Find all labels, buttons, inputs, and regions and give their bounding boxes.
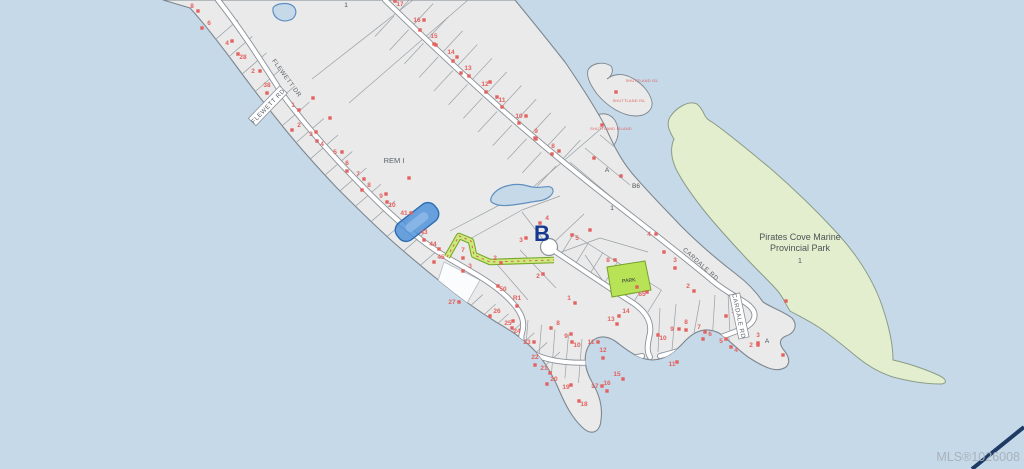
lot-number: 9 bbox=[670, 326, 674, 333]
lot-number: 3 bbox=[519, 237, 523, 244]
lot-number: 4 bbox=[734, 347, 738, 354]
lot-number: 17 bbox=[591, 383, 599, 390]
lot-number: 16 bbox=[603, 380, 611, 387]
lot-dot bbox=[729, 345, 732, 348]
lot-number: 44 bbox=[429, 241, 437, 248]
lot-dot bbox=[451, 59, 454, 62]
lot-dot bbox=[314, 130, 317, 133]
lot-number: 3 bbox=[756, 332, 760, 339]
lot-dot bbox=[724, 337, 727, 340]
lot-number: 17 bbox=[396, 1, 404, 8]
lot-number: 18 bbox=[580, 401, 588, 408]
area-label: Provincial Park bbox=[770, 243, 831, 253]
lot-number: 24 bbox=[513, 328, 521, 335]
lot-number: 4 bbox=[225, 40, 229, 47]
island-label: SHUTTLAND ISL bbox=[613, 98, 647, 103]
lot-dot bbox=[549, 326, 552, 329]
lot-dot bbox=[548, 371, 551, 374]
lot-number: 50 bbox=[499, 286, 507, 293]
lot-number: 38 bbox=[263, 82, 271, 89]
lot-number: 7 bbox=[461, 247, 465, 254]
lot-dot bbox=[409, 211, 412, 214]
lot-number: 8 bbox=[606, 257, 610, 264]
lot-number: 3 bbox=[673, 257, 677, 264]
lot-dot bbox=[457, 300, 460, 303]
lot-number: 5 bbox=[333, 149, 337, 156]
lot-dot bbox=[570, 233, 573, 236]
lot-dot bbox=[569, 383, 572, 386]
lot-number: 5 bbox=[719, 338, 723, 345]
lot-number: 10 bbox=[388, 202, 396, 209]
lot-number: 19 bbox=[562, 384, 570, 391]
lot-dot bbox=[662, 250, 665, 253]
lot-number: B6 bbox=[632, 183, 640, 190]
lot-dot bbox=[200, 26, 203, 29]
lot-dot bbox=[290, 128, 293, 131]
lot-number: 2 bbox=[749, 342, 753, 349]
lot-number: 8 bbox=[367, 182, 371, 189]
lot-dot bbox=[675, 360, 678, 363]
lot-dot bbox=[422, 238, 425, 241]
lot-number: 11 bbox=[499, 97, 506, 104]
lot-number: 28 bbox=[239, 54, 247, 61]
lot-number: 4 bbox=[647, 231, 651, 238]
lot-dot bbox=[455, 55, 458, 58]
lot-dot bbox=[613, 258, 616, 261]
lot-number: 3 bbox=[309, 131, 313, 138]
lot-number: 9 bbox=[379, 193, 383, 200]
lot-dot bbox=[550, 152, 553, 155]
island-label: SHUTTLAND ISL bbox=[626, 78, 660, 83]
lot-dot bbox=[635, 285, 638, 288]
lot-dot bbox=[654, 232, 657, 235]
lot-dot bbox=[265, 91, 268, 94]
lot-dot bbox=[532, 340, 535, 343]
lot-number: 7 bbox=[697, 324, 701, 331]
lot-dot bbox=[541, 272, 544, 275]
lot-dot bbox=[596, 340, 599, 343]
section-b-label: B bbox=[534, 221, 550, 246]
lot-number: 1 bbox=[567, 295, 571, 302]
lot-dot bbox=[656, 333, 659, 336]
lot-dot bbox=[510, 326, 513, 329]
lot-dot bbox=[461, 269, 464, 272]
lot-number: 1 bbox=[291, 102, 295, 109]
lot-dot bbox=[362, 177, 365, 180]
lot-dot bbox=[385, 200, 388, 203]
lot-dot bbox=[459, 71, 462, 74]
lot-dot bbox=[432, 260, 435, 263]
lot-number: 6 bbox=[207, 20, 211, 27]
lot-dot bbox=[500, 105, 503, 108]
lot-number: 14 bbox=[447, 49, 455, 56]
lot-number: 2 bbox=[493, 255, 497, 262]
mls-watermark: MLS®1026008 bbox=[936, 450, 1020, 464]
lot-dot bbox=[684, 328, 687, 331]
lot-number: 6 bbox=[708, 331, 712, 338]
lot-dot bbox=[617, 314, 620, 317]
lot-number: 3 bbox=[468, 263, 472, 270]
lot-number: 8 bbox=[684, 319, 688, 326]
lot-dot bbox=[588, 228, 591, 231]
lot-number: 7 bbox=[356, 171, 360, 178]
lot-number: 4 bbox=[320, 141, 324, 148]
lot-dot bbox=[484, 90, 487, 93]
lot-dot bbox=[573, 301, 576, 304]
lot-dot bbox=[601, 356, 604, 359]
lot-dot bbox=[619, 174, 622, 177]
lot-dot bbox=[533, 363, 536, 366]
lot-dot bbox=[297, 108, 300, 111]
lot-number: 22 bbox=[531, 354, 539, 361]
lot-dot bbox=[236, 52, 239, 55]
lot-number: R1 bbox=[513, 295, 522, 302]
lot-number: 15 bbox=[613, 371, 621, 378]
lot-number: 11 bbox=[669, 361, 676, 368]
lot-number: 26 bbox=[493, 308, 501, 315]
area-label: REM I bbox=[384, 156, 405, 165]
lot-dot bbox=[621, 377, 624, 380]
lot-dot bbox=[393, 0, 396, 3]
area-label: Pirates Cove Marine bbox=[759, 232, 841, 242]
map-viewport[interactable]: 8642823812345678910414344451171615141312… bbox=[0, 0, 1024, 469]
lot-number: 8 bbox=[551, 143, 555, 150]
lot-dot bbox=[577, 399, 580, 402]
lot-dot bbox=[499, 261, 502, 264]
lot-dot bbox=[524, 236, 527, 239]
lot-number: 9 bbox=[534, 128, 538, 135]
lot-number: 2 bbox=[536, 273, 540, 280]
lot-number: 21 bbox=[540, 365, 548, 372]
lot-number: 13 bbox=[464, 65, 472, 72]
lot-number: 11 bbox=[588, 339, 595, 346]
lot-number: 10 bbox=[659, 335, 667, 342]
area-label: 1 bbox=[798, 258, 802, 265]
lot-dot bbox=[311, 96, 314, 99]
lot-number: 5 bbox=[575, 235, 579, 242]
lot-dot bbox=[781, 353, 784, 356]
lot-number: 41 bbox=[400, 210, 408, 217]
lot-number: 8 bbox=[190, 3, 194, 10]
lot-dot bbox=[570, 340, 573, 343]
lot-dot bbox=[495, 95, 498, 98]
lot-number: 23 bbox=[523, 339, 531, 346]
lot-dot bbox=[360, 188, 363, 191]
lot-number: 1 bbox=[610, 205, 614, 212]
lot-dot bbox=[515, 304, 518, 307]
lot-dot bbox=[517, 121, 520, 124]
lot-dot bbox=[557, 149, 560, 152]
lot-number: 15 bbox=[430, 33, 438, 40]
lot-dot bbox=[692, 289, 695, 292]
lot-dot bbox=[756, 341, 759, 344]
lot-number: 10 bbox=[515, 113, 523, 120]
lot-dot bbox=[784, 299, 787, 302]
lot-number: 14 bbox=[622, 308, 630, 315]
lot-dot bbox=[437, 247, 440, 250]
lot-dot bbox=[511, 319, 514, 322]
lot-number: 6 bbox=[345, 160, 349, 167]
lot-dot bbox=[345, 169, 348, 172]
lot-dot bbox=[258, 69, 261, 72]
lot-dot bbox=[461, 256, 464, 259]
lot-dot bbox=[488, 80, 491, 83]
lot-dot bbox=[196, 9, 199, 12]
lot-dot bbox=[524, 114, 527, 117]
lot-number: 27 bbox=[448, 299, 456, 306]
lot-number: 12 bbox=[481, 81, 489, 88]
lot-dot bbox=[488, 314, 491, 317]
lot-number: 43 bbox=[420, 229, 428, 236]
lot-number: 1 bbox=[344, 2, 348, 9]
lot-number: 2 bbox=[251, 68, 255, 75]
lot-dot bbox=[340, 150, 343, 153]
lot-number: 45 bbox=[437, 254, 445, 261]
lot-dot bbox=[315, 139, 318, 142]
lot-number: 10 bbox=[573, 342, 581, 349]
lot-dot bbox=[422, 18, 425, 21]
lot-number: 13 bbox=[607, 316, 615, 323]
lot-dot bbox=[677, 327, 680, 330]
lot-dot bbox=[407, 176, 410, 179]
lot-number: 9 bbox=[564, 333, 568, 340]
lot-dot bbox=[467, 74, 470, 77]
lot-dot bbox=[724, 314, 727, 317]
map-canvas[interactable]: 8642823812345678910414344451171615141312… bbox=[0, 0, 1024, 469]
lot-number: 16 bbox=[413, 17, 421, 24]
lot-dot bbox=[645, 290, 648, 293]
lot-dot bbox=[673, 266, 676, 269]
lot-number: 65 bbox=[638, 291, 646, 298]
lot-dot bbox=[418, 28, 421, 31]
lot-number: 25 bbox=[504, 320, 512, 327]
lot-dot bbox=[496, 284, 499, 287]
lot-number: 12 bbox=[599, 347, 607, 354]
island-label: SHUTTLAND ISLAND bbox=[590, 126, 632, 131]
lot-dot bbox=[703, 330, 706, 333]
lot-dot bbox=[701, 337, 704, 340]
lot-dot bbox=[533, 136, 536, 139]
lot-number: 2 bbox=[297, 122, 301, 129]
pond bbox=[273, 4, 296, 21]
lot-number: 20 bbox=[550, 376, 558, 383]
lot-dot bbox=[614, 90, 617, 93]
lot-dot bbox=[605, 389, 608, 392]
lot-dot bbox=[384, 192, 387, 195]
lot-dot bbox=[615, 322, 618, 325]
lot-dot bbox=[592, 156, 595, 159]
lot-number: A bbox=[765, 338, 770, 345]
lot-dot bbox=[230, 39, 233, 42]
lot-number: 2 bbox=[686, 283, 690, 290]
lot-dot bbox=[569, 332, 572, 335]
lot-dot bbox=[545, 382, 548, 385]
lot-number: 8 bbox=[556, 320, 560, 327]
lot-dot bbox=[434, 43, 437, 46]
lot-dot bbox=[328, 116, 331, 119]
lot-number: A bbox=[605, 167, 610, 174]
